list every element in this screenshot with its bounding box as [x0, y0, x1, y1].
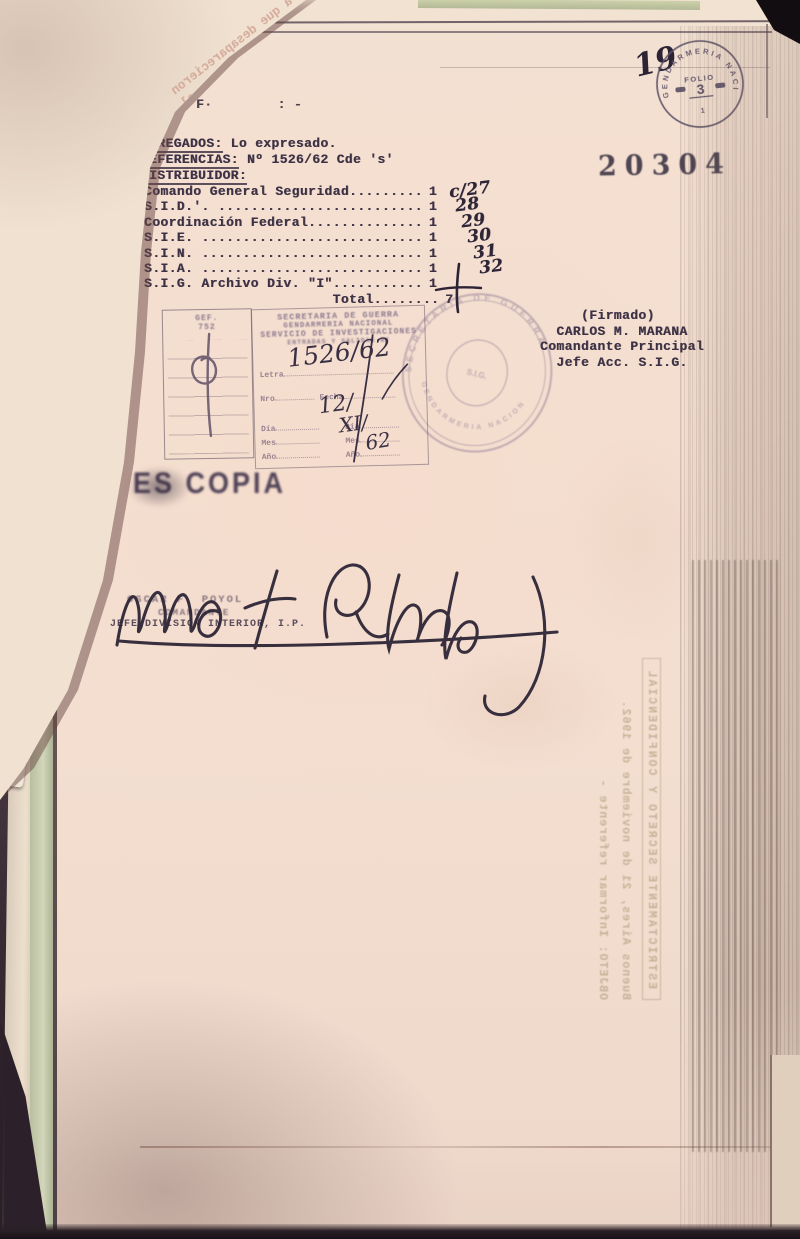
handwritten-signature — [105, 515, 575, 725]
leader-dots: ........................... — [201, 246, 422, 261]
scanned-archive-photo: ESTRICTAMENTE SECRETO Y CONFIDENCIAL Bue… — [0, 0, 800, 1239]
ink-blotch — [127, 466, 191, 508]
distribution-row: Coordinación Federal..............129 — [144, 215, 491, 230]
distribution-row: Comando General Seguridad.........1c/27 — [144, 184, 491, 199]
referencias-line: REFERENCIAS: Nº 1526/62 Cde 's' — [141, 152, 394, 167]
copy-count: 1 — [423, 199, 437, 214]
recipient-name: Coordinación Federal — [144, 215, 308, 230]
handwritten-stroke-overlay — [252, 306, 428, 468]
ghost-date-line: Buenos Aires, 21 de noviembre de 1962. — [619, 380, 632, 1000]
distribution-row: S.I.D.'. .........................128 — [144, 199, 491, 214]
distribution-row: S.I.E. ...........................130 — [144, 230, 491, 245]
right-page-edge — [770, 1055, 800, 1227]
copy-count: 1 — [423, 184, 437, 199]
ghost-body-line: OBJETO: Informar referente - — [596, 380, 609, 1000]
recipient-name: Total — [144, 292, 374, 307]
leader-dots: ........................... — [201, 261, 422, 276]
recipient-name: Comando General Seguridad. — [144, 184, 357, 199]
leader-dots: ......................... — [218, 199, 423, 214]
header-fragment: F· : - — [196, 97, 302, 112]
leader-dots: ........ — [357, 184, 423, 199]
seal-center-text: S.I.G. — [466, 368, 488, 382]
ghost-classification-box: ESTRICTAMENTE SECRETO Y CONFIDENCIAL — [642, 658, 661, 1000]
recipient-name: S.I.N. — [144, 246, 201, 261]
es-copia-stamp: ES COPIA — [133, 468, 286, 499]
bottom-edge-shadow — [0, 1224, 800, 1239]
leader-dots: ........................... — [201, 230, 422, 245]
handwritten-cross-mark — [432, 262, 484, 314]
entry-registry-stamp-box: SECRETARIA DE GUERRA GENDARMERIA NACIONA… — [251, 305, 429, 469]
recipient-name: S.I.A. — [144, 261, 201, 276]
referencias-value: Nº 1526/62 Cde 's' — [239, 152, 394, 167]
side-registry-box: GEF. 752 — [162, 308, 255, 460]
leader-dots: ........... — [333, 276, 423, 291]
agregados-value: Lo expresado. — [223, 136, 337, 151]
copy-count: 1 — [423, 215, 437, 230]
copy-count: 1 — [423, 246, 437, 261]
right-edge-streaks-dark — [692, 560, 778, 1152]
copy-count: 1 — [423, 230, 437, 245]
handwritten-check-symbol — [163, 309, 254, 459]
recipient-name: S.I.G. Archivo Div. "I" — [144, 276, 333, 291]
leader-dots: .............. — [308, 215, 423, 230]
distribution-row: S.I.N. ...........................131 — [144, 246, 491, 261]
